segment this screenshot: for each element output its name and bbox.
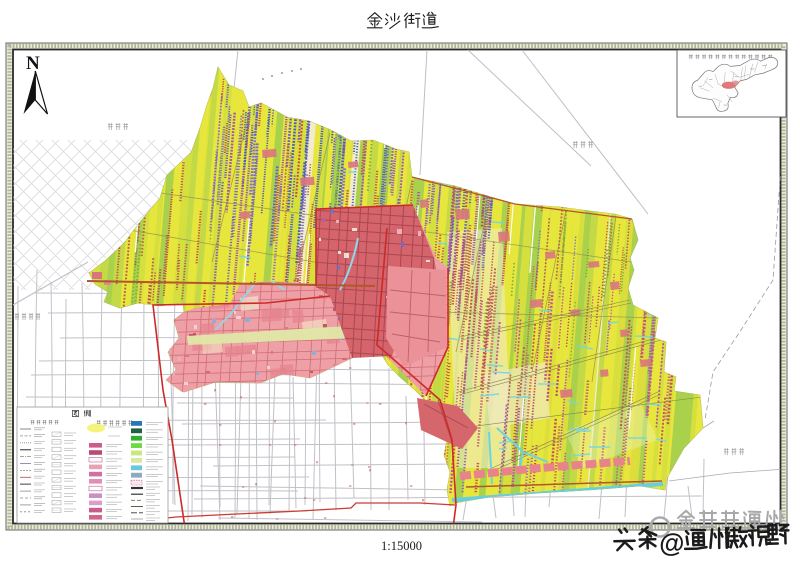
svg-text:1:15000: 1:15000 — [381, 539, 422, 553]
svg-text:N: N — [26, 53, 40, 74]
svg-text:@: @ — [659, 527, 685, 558]
